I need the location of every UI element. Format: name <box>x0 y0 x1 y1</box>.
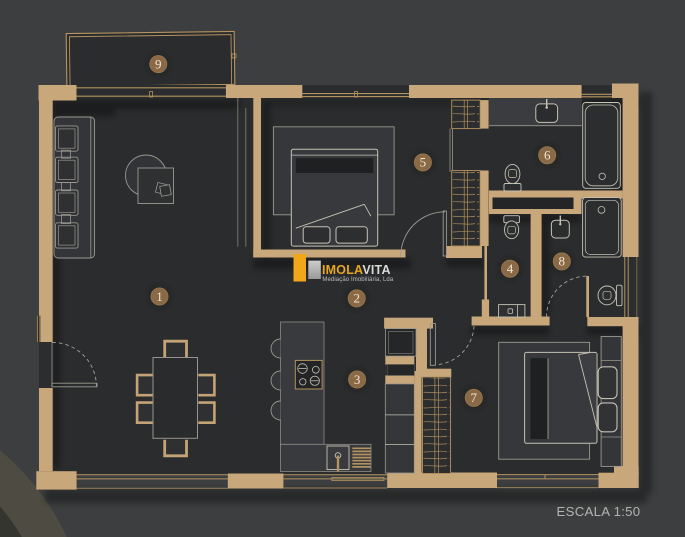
svg-text:6: 6 <box>544 148 551 163</box>
svg-text:1: 1 <box>156 289 163 304</box>
svg-text:7: 7 <box>471 390 478 405</box>
svg-text:2: 2 <box>353 291 360 306</box>
svg-text:4: 4 <box>507 261 514 276</box>
svg-text:ESCALA 1:50: ESCALA 1:50 <box>557 504 641 519</box>
svg-text:8: 8 <box>559 254 566 269</box>
svg-text:5: 5 <box>420 155 427 170</box>
svg-text:Mediação Imobiliária, Lda: Mediação Imobiliária, Lda <box>322 277 393 283</box>
svg-text:3: 3 <box>354 372 361 387</box>
svg-text:IMOLAVITA: IMOLAVITA <box>322 263 391 277</box>
svg-text:9: 9 <box>155 56 162 71</box>
